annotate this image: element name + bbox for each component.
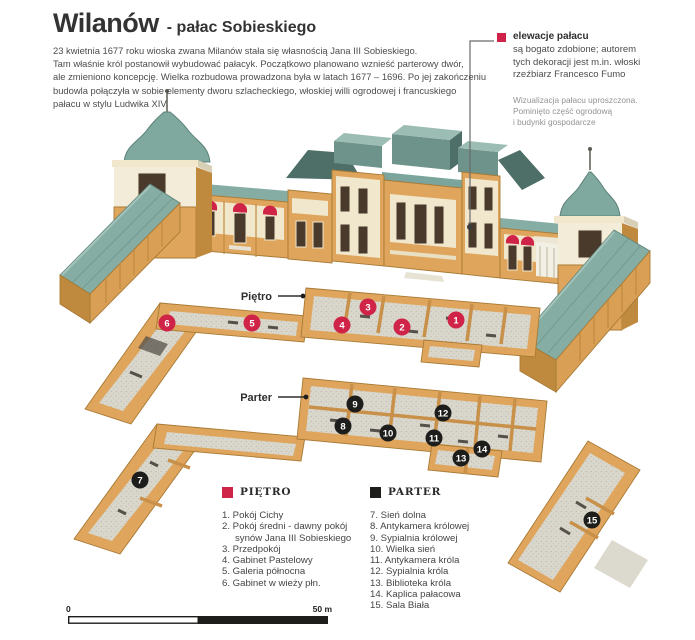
floorplan-parter — [74, 378, 648, 592]
right-tower-cupola — [560, 172, 620, 216]
callout-title: elewacje pałacu — [513, 31, 695, 43]
pietro-label: Piętro — [241, 291, 272, 303]
legend-item: 4. Gabinet Pastelowy — [222, 555, 354, 566]
legend-item: 15. Sala Biała — [370, 600, 502, 611]
room-marker-number: 1 — [453, 316, 459, 327]
room-marker-number: 5 — [249, 319, 255, 330]
legend-item: 1. Pokój Cichy — [222, 510, 354, 521]
legend-item: 10. Wielka sień — [370, 544, 502, 555]
room-marker-number: 12 — [438, 409, 449, 420]
pietro-square-icon — [222, 487, 233, 498]
infographic-canvas: Piętro Parter 123456 789101112131415 0 5… — [0, 0, 695, 640]
room-marker-number: 7 — [137, 476, 142, 487]
portico — [534, 236, 560, 278]
room-marker-number: 8 — [340, 422, 345, 433]
scale-bar: 0 50 m — [66, 604, 332, 624]
legend-item: 2. Pokój średni - dawny pokój synów Jana… — [222, 521, 354, 544]
legend-parter-title: PARTER — [388, 486, 441, 498]
header: Wilanów - pałac Sobieskiego 23 kwietnia … — [53, 8, 513, 110]
room-marker-number: 2 — [399, 323, 404, 334]
room-marker-number: 4 — [339, 321, 345, 332]
room-marker-number: 3 — [365, 303, 370, 314]
callout-body: są bogato zdobione; autorem tych dekorac… — [513, 44, 695, 81]
legend-pietro-header: PIĘTRO — [222, 486, 354, 498]
awning-window — [263, 206, 277, 240]
legend-item: 12. Sypialnia króla — [370, 566, 502, 577]
parter-square-icon — [370, 487, 381, 498]
legend-item: 3. Przedpokój — [222, 544, 354, 555]
room-marker-number: 15 — [587, 516, 598, 527]
legend-item: 7. Sień dolna — [370, 510, 502, 521]
room-marker-number: 14 — [477, 445, 488, 456]
title-sub: - pałac Sobieskiego — [167, 19, 316, 37]
awning-window — [521, 237, 534, 271]
awning-window — [506, 235, 519, 270]
legend-item: 9. Sypialnia królowej — [370, 533, 502, 544]
title-main: Wilanów — [53, 8, 159, 39]
legend-item: 14. Kaplica pałacowa — [370, 589, 502, 600]
room-marker-number: 11 — [429, 434, 440, 445]
floor-labels: Piętro Parter — [240, 291, 308, 404]
room-marker-number: 9 — [352, 400, 357, 411]
visualization-note: Wizualizacja pałacu uproszczona. Pominię… — [513, 95, 673, 127]
page-title: Wilanów - pałac Sobieskiego — [53, 8, 513, 39]
parter-label: Parter — [240, 392, 273, 404]
legend-item: 11. Antykamera króla — [370, 555, 502, 566]
legend-parter: PARTER 7. Sień dolna8. Antykamera królow… — [370, 486, 502, 612]
legend-item: 13. Biblioteka króla — [370, 578, 502, 589]
room-marker-number: 13 — [456, 454, 467, 465]
legend-parter-header: PARTER — [370, 486, 502, 498]
legend-item: 5. Galeria północna — [222, 566, 354, 577]
callout-square-icon — [497, 33, 506, 42]
facade-callout: elewacje pałacu są bogato zdobione; auto… — [497, 31, 695, 81]
scale-zero: 0 — [66, 604, 71, 614]
room-marker-number: 10 — [383, 429, 394, 440]
legend-item: 6. Gabinet w wieży płn. — [222, 578, 354, 589]
scale-max: 50 m — [313, 604, 333, 614]
legend-parter-items: 7. Sień dolna8. Antykamera królowej9. Sy… — [370, 510, 502, 612]
legend-pietro-title: PIĘTRO — [240, 486, 291, 498]
legend-pietro: PIĘTRO 1. Pokój Cichy2. Pokój średni - d… — [222, 486, 354, 589]
intro-paragraph: 23 kwietnia 1677 roku wioska zwana Milan… — [53, 44, 513, 110]
legend-pietro-items: 1. Pokój Cichy2. Pokój średni - dawny po… — [222, 510, 354, 589]
legend-item: 8. Antykamera królowej — [370, 521, 502, 532]
left-tower-cupola — [124, 112, 210, 162]
room-marker-number: 6 — [164, 319, 169, 330]
